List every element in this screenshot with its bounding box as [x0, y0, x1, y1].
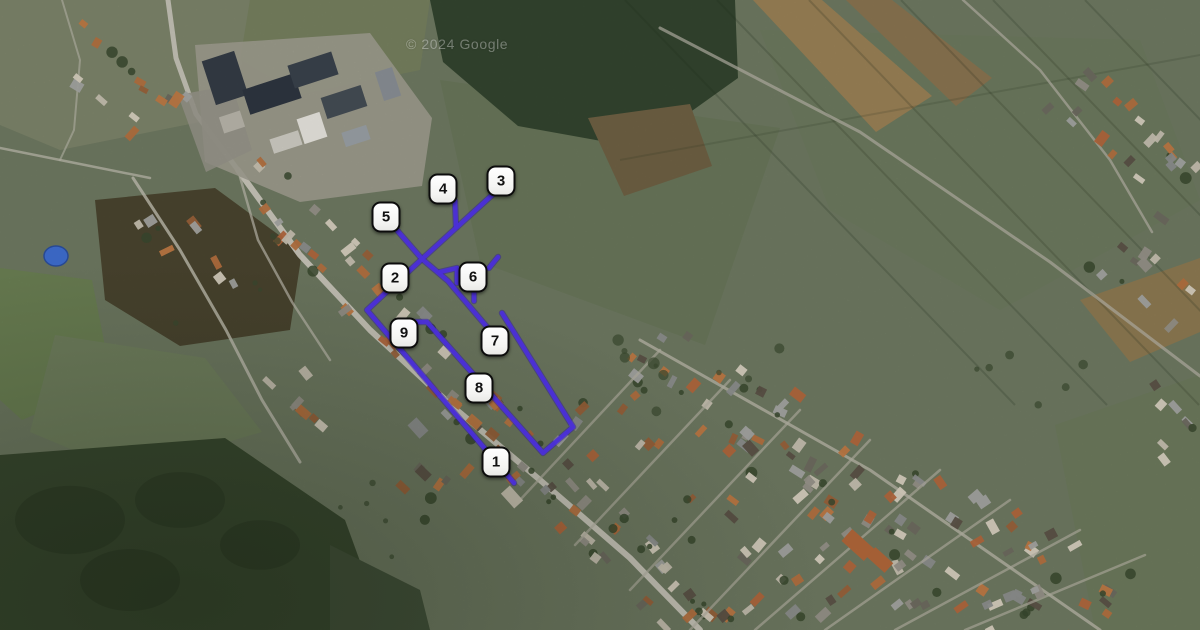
map-marker-1[interactable]: 1: [482, 447, 511, 478]
map-marker-6[interactable]: 6: [459, 262, 488, 293]
map-marker-label: 4: [439, 182, 447, 197]
map-marker-label: 9: [400, 326, 408, 341]
map-marker-label: 3: [497, 174, 505, 189]
map-marker-7[interactable]: 7: [481, 326, 510, 357]
map-marker-8[interactable]: 8: [465, 373, 494, 404]
satellite-map[interactable]: 123456789 © 2024 Google: [0, 0, 1200, 630]
map-marker-3[interactable]: 3: [487, 166, 516, 197]
map-marker-label: 7: [491, 334, 499, 349]
map-marker-label: 2: [391, 271, 399, 286]
map-marker-5[interactable]: 5: [372, 202, 401, 233]
map-marker-label: 6: [469, 270, 477, 285]
map-marker-label: 1: [492, 455, 500, 470]
map-marker-4[interactable]: 4: [429, 174, 458, 205]
map-marker-label: 8: [475, 381, 483, 396]
map-marker-label: 5: [382, 210, 390, 225]
satellite-imagery: [0, 0, 1200, 630]
map-marker-2[interactable]: 2: [381, 263, 410, 294]
map-marker-9[interactable]: 9: [390, 318, 419, 349]
